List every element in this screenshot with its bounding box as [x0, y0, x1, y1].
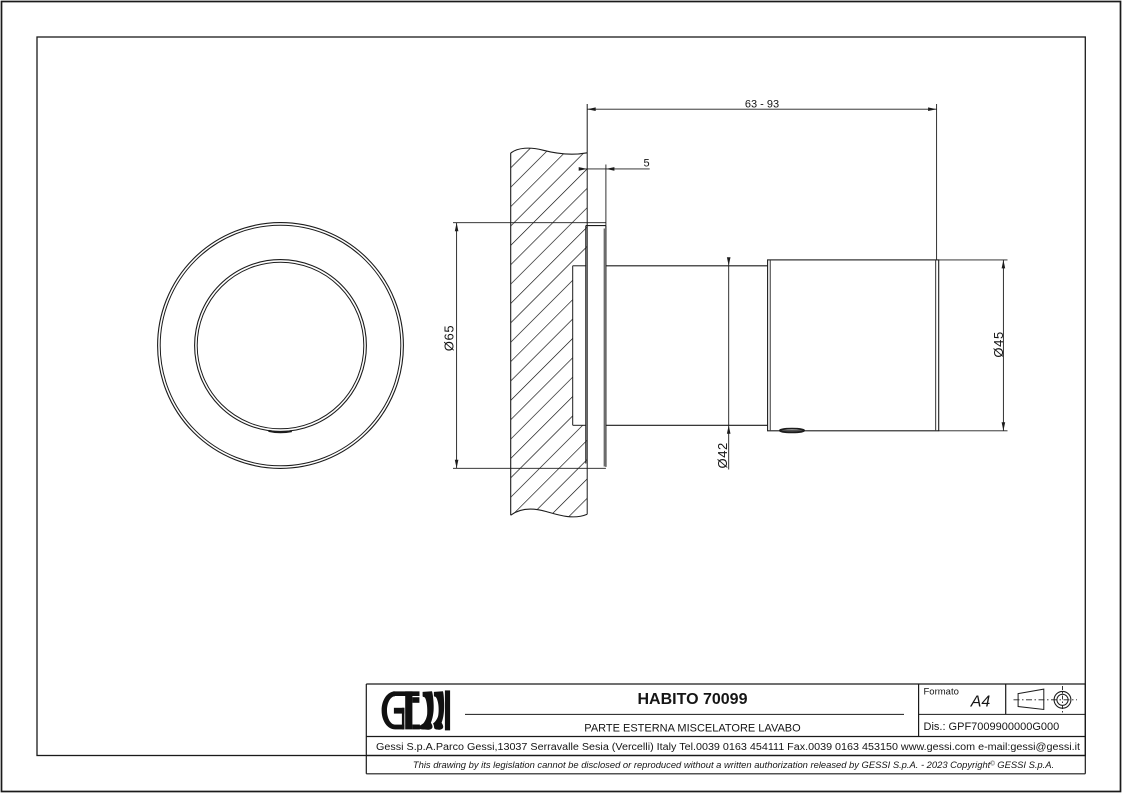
svg-text:Gessi S.p.A.Parco Gessi,13037: Gessi S.p.A.Parco Gessi,13037 Serravalle…	[376, 742, 1080, 753]
svg-text:PARTE ESTERNA MISCELATORE LAVA: PARTE ESTERNA MISCELATORE LAVABO	[584, 722, 801, 734]
svg-text:Ø45: Ø45	[991, 331, 1006, 357]
svg-text:5: 5	[643, 157, 649, 169]
svg-text:A4: A4	[970, 693, 991, 710]
svg-text:Formato: Formato	[924, 687, 959, 698]
svg-text:HABITO 70099: HABITO 70099	[638, 691, 748, 708]
svg-text:Dis.: GPF7009900000G000: Dis.: GPF7009900000G000	[924, 721, 1060, 733]
svg-text:This drawing by its legislatio: This drawing by its legislation cannot b…	[413, 759, 1054, 770]
svg-text:Ø42: Ø42	[715, 442, 730, 468]
svg-text:Ø65: Ø65	[441, 325, 456, 351]
svg-text:63 - 93: 63 - 93	[745, 99, 779, 111]
